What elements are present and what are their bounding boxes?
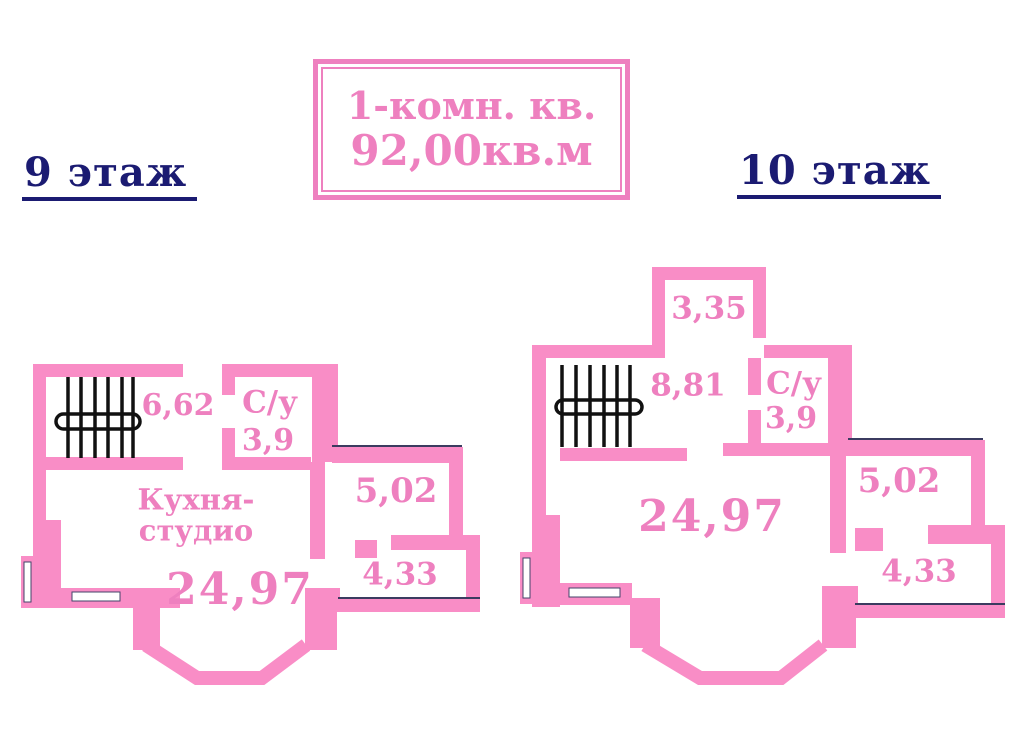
floor9-bathroom-area-label: 3,9 (242, 426, 294, 456)
apartment-total-area-label: 92,00кв.м (350, 127, 592, 174)
floor-plan-page: 9 этаж 10 этаж 1-комн. кв. 92,00кв.м 6,6… (0, 0, 1024, 742)
floor9-heading: 9 этаж (22, 152, 197, 201)
floor9-room-433-area-label: 4,33 (362, 560, 438, 591)
floor9-kitchen-studio-label: Кухня- студио (138, 485, 255, 548)
floor10-heading: 10 этаж (737, 150, 941, 199)
apartment-type-label: 1-комн. кв. (347, 85, 596, 128)
floor10-bathroom-area-label: 3,9 (765, 404, 817, 434)
floor10-main-room-area-label: 24,97 (638, 495, 786, 539)
floor9-stairs-icon (56, 377, 140, 458)
floor10-room-502-area-label: 5,02 (858, 464, 941, 498)
apartment-title-box-inner-border: 1-комн. кв. 92,00кв.м (321, 67, 622, 192)
floor9-room-502-area-label: 5,02 (355, 474, 438, 508)
floor9-stairwell-area-label: 6,62 (141, 391, 214, 421)
floor10-bathroom-label: С/у (766, 369, 822, 400)
floor10-room-433-area-label: 4,33 (881, 557, 957, 588)
floor10-stairwell-area-label: 8,81 (650, 371, 726, 402)
floor9-bathroom-label: С/у (242, 388, 298, 419)
floor9-kitchen-line1: Кухня- (138, 485, 255, 516)
floor10-balcony-area-label: 3,35 (671, 294, 747, 325)
floor10-bay-window-wall (645, 645, 823, 678)
floor9-kitchen-line2: студио (138, 516, 255, 547)
floor9-bay-window-wall (146, 645, 306, 678)
floor10-stairs-icon (556, 365, 642, 447)
floor9-main-room-area-label: 24,97 (166, 568, 314, 612)
apartment-title-box: 1-комн. кв. 92,00кв.м (313, 59, 630, 200)
